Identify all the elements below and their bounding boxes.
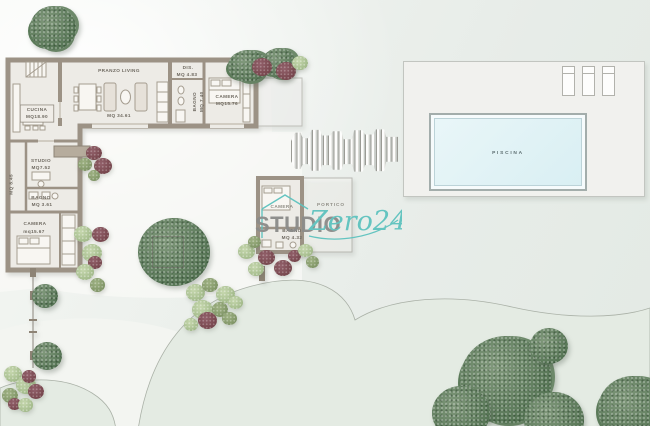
terrace-planter: [54, 146, 90, 157]
bush: [22, 370, 36, 383]
bush: [292, 56, 308, 70]
bush: [228, 296, 243, 309]
tree-canopy: [530, 328, 568, 364]
bush: [88, 170, 100, 181]
bush: [202, 278, 218, 292]
bush: [274, 260, 292, 276]
room-area-corridoio: MQ 8.45: [9, 169, 16, 200]
bush: [248, 262, 264, 276]
bush: [28, 384, 44, 399]
room-label-bagno-2: BAGNO: [22, 195, 61, 202]
side-terrace: [256, 78, 302, 126]
room-area-camera-1: MQ15.76: [204, 101, 251, 108]
bush: [222, 312, 237, 325]
room-label-dis: DIS.: [172, 65, 203, 72]
tree-planter-outline: [152, 236, 184, 268]
room-area-pranzo-living: MQ 34.61: [96, 113, 143, 120]
logo-house-roof-icon: [262, 195, 308, 209]
room-area-studio: MQ7.52: [22, 165, 61, 172]
bush: [18, 398, 33, 412]
bush: [92, 227, 109, 242]
room-label-studio: STUDIO: [22, 158, 61, 165]
room-label-pranzo-living: PRANZO LIVING: [88, 68, 150, 75]
bush: [78, 158, 92, 171]
studio-zero24-watermark: STUDIO Zero24: [252, 188, 402, 246]
room-area-dis: MQ 4.83: [171, 72, 202, 79]
tree-canopy: [32, 342, 62, 370]
logo-text-zero24: Zero24: [308, 206, 402, 237]
room-area-bagno-2: MQ 3.61: [23, 202, 62, 209]
bush: [184, 318, 198, 331]
tree-canopy: [32, 284, 58, 308]
room-label-camera-2: CAMERA: [12, 221, 59, 228]
bush: [74, 226, 92, 242]
bush: [252, 58, 272, 76]
bush: [90, 278, 105, 292]
floor-plan-canvas: PISCINA: [0, 0, 650, 426]
room-area-camera-2: mq15.67: [11, 229, 58, 236]
room-label-cucina: CUCINAMQ18.90: [20, 105, 54, 123]
room-label-camera-1: CAMERA: [204, 94, 251, 101]
bush: [306, 256, 319, 268]
tree-canopy: [30, 6, 76, 50]
bush: [76, 264, 94, 280]
bush: [198, 312, 217, 329]
